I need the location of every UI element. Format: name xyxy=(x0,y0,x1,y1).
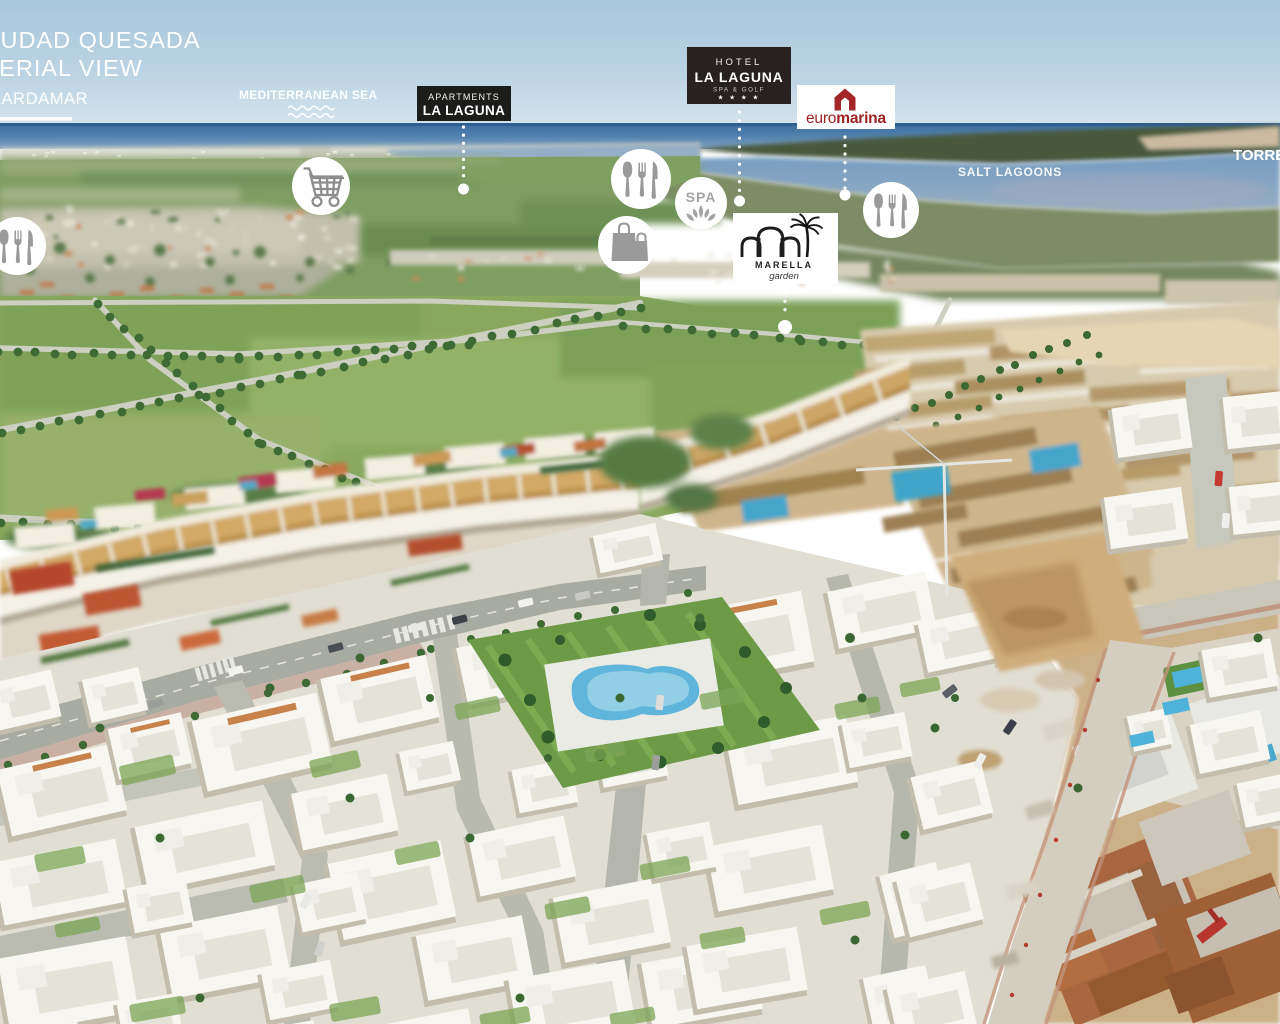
svg-text:TORREVIEJA: TORREVIEJA xyxy=(1233,147,1280,164)
svg-text:euromarina: euromarina xyxy=(806,110,886,127)
svg-text:APARTMENTS: APARTMENTS xyxy=(428,92,500,102)
svg-text:MEDITERRANEAN SEA: MEDITERRANEAN SEA xyxy=(239,88,377,102)
svg-text:SPA & GOLF: SPA & GOLF xyxy=(713,87,765,94)
svg-text:GUARDAMAR: GUARDAMAR xyxy=(0,90,88,108)
svg-text:LA LAGUNA: LA LAGUNA xyxy=(423,103,506,118)
svg-text:★ ★ ★ ★: ★ ★ ★ ★ xyxy=(718,94,761,102)
svg-text:AERIAL VIEW: AERIAL VIEW xyxy=(0,55,143,81)
svg-text:garden: garden xyxy=(769,271,799,282)
svg-text:SPA: SPA xyxy=(686,189,717,205)
svg-text:HOTEL: HOTEL xyxy=(716,57,763,68)
svg-text:MARELLA: MARELLA xyxy=(755,260,813,270)
svg-text:LA LAGUNA: LA LAGUNA xyxy=(694,69,783,85)
svg-text:CIUDAD QUESADA: CIUDAD QUESADA xyxy=(0,27,201,53)
svg-text:SALT LAGOONS: SALT LAGOONS xyxy=(958,165,1062,179)
